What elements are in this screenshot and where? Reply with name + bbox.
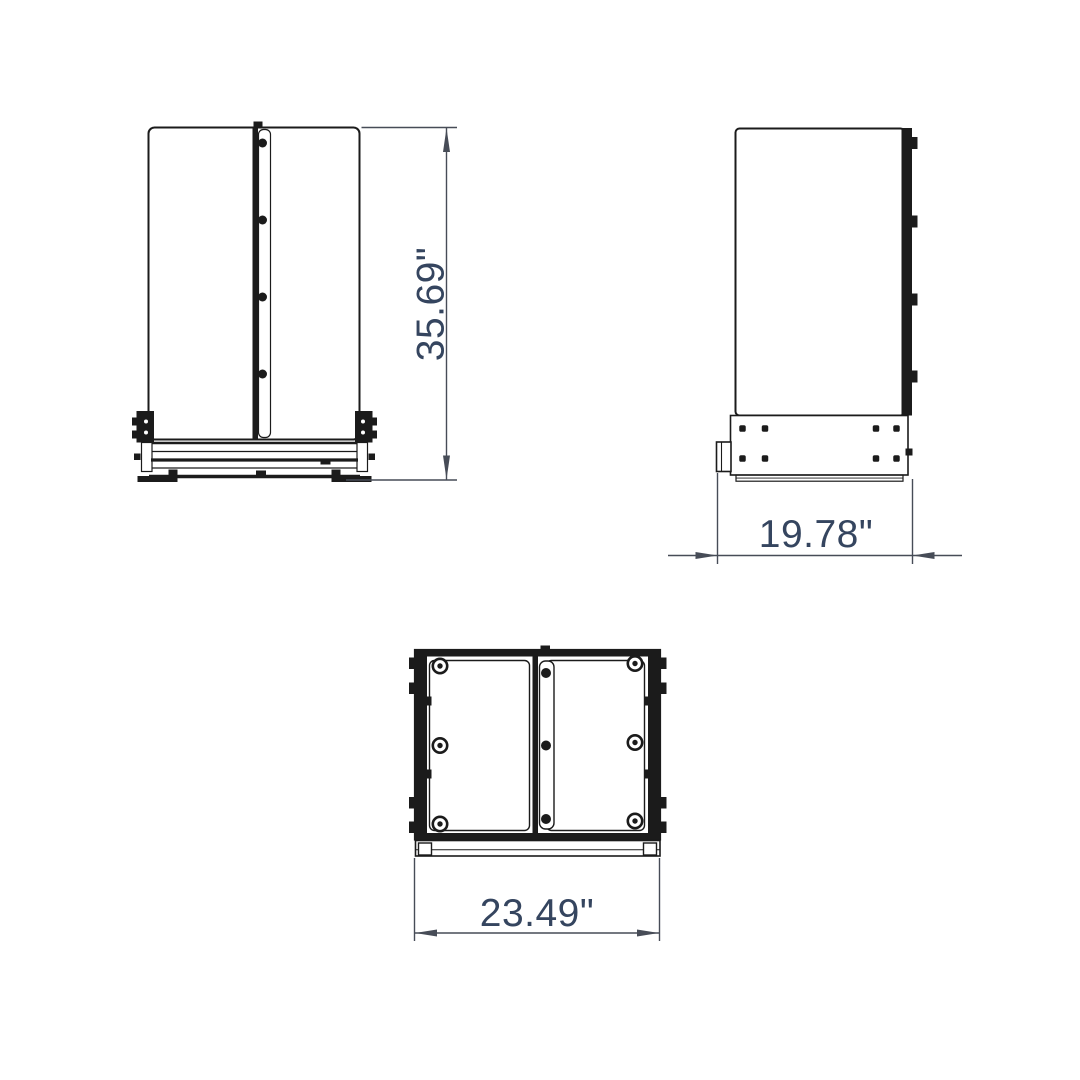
side-latch [717, 442, 732, 472]
top-frame-right-bar [648, 650, 661, 840]
dimension-arrow-left [696, 552, 718, 559]
front-view [132, 122, 377, 483]
top-strip-right-cap [644, 843, 657, 855]
front-left-bracket [132, 411, 154, 472]
height-dimension-label: 35.69" [410, 247, 453, 361]
technical-drawing: 35.69" [0, 0, 1080, 1080]
front-base-tab [256, 471, 266, 477]
dimension-arrow-top [443, 128, 450, 152]
top-center-rail-cap [541, 646, 551, 654]
top-center-rail [533, 652, 539, 836]
dimension-arrow-bottom [443, 456, 450, 480]
side-rear-clip [906, 449, 913, 456]
dimension-arrow-left [415, 930, 437, 937]
side-base-strip [736, 475, 903, 481]
depth-dimension-label: 19.78" [759, 513, 873, 556]
front-base-notch [321, 459, 331, 465]
depth-dimension: 19.78" [668, 473, 962, 564]
side-panel [736, 129, 905, 416]
width-dimension: 23.49" [415, 858, 660, 941]
side-view [717, 128, 918, 481]
side-rear-tabs [912, 137, 918, 383]
top-view [409, 646, 667, 857]
top-frame-left-bar [415, 650, 427, 840]
front-right-bracket [355, 411, 377, 472]
dimension-arrow-right [913, 552, 935, 559]
dimension-arrow-right [637, 930, 659, 937]
front-center-rail [253, 127, 259, 440]
top-right-tabs [661, 658, 667, 834]
front-center-rail-cap [254, 122, 263, 129]
width-dimension-label: 23.49" [480, 892, 594, 935]
top-strip-left-cap [419, 843, 432, 855]
drawing-canvas: 35.69" [0, 0, 1080, 1080]
side-rear-channel [902, 128, 913, 416]
top-base-strip [416, 841, 661, 857]
side-base-plate [731, 416, 909, 476]
